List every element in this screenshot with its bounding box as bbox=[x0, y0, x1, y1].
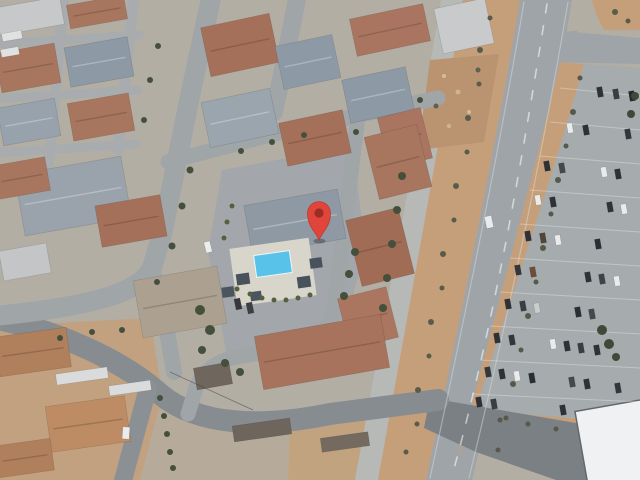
pin-inner-dot bbox=[314, 208, 323, 217]
satellite-imagery[interactable] bbox=[0, 0, 640, 480]
map-viewport bbox=[0, 0, 640, 480]
pool-area bbox=[221, 238, 322, 307]
